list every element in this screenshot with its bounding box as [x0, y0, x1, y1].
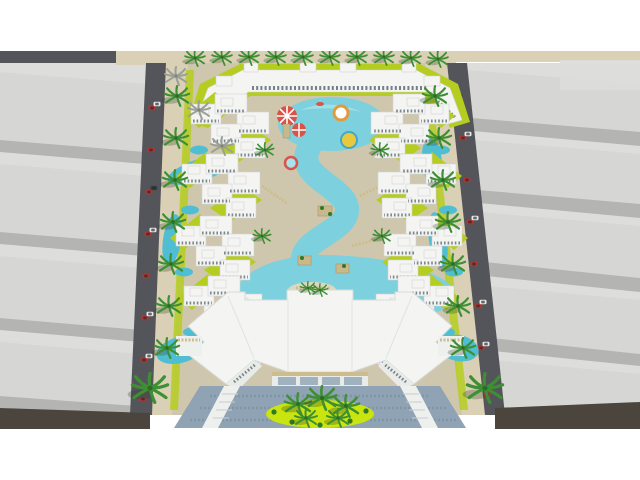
kids-ring-pool [285, 157, 297, 169]
car [460, 136, 467, 140]
car [467, 220, 474, 224]
car [148, 148, 155, 152]
yellow-disc-float [341, 132, 357, 148]
render-canvas [0, 0, 640, 480]
clubhouse-roof [188, 290, 452, 384]
car [149, 106, 156, 110]
round-walk-loop [337, 151, 367, 181]
car [151, 186, 158, 190]
car [475, 304, 482, 308]
top-left-road [0, 51, 116, 63]
left-city-blocks [0, 51, 150, 415]
pergola-cabana [298, 256, 311, 265]
massing-slab [0, 256, 143, 330]
car [480, 300, 487, 304]
car [465, 132, 472, 136]
car [146, 190, 153, 194]
car [483, 342, 490, 346]
car [464, 178, 471, 182]
car [150, 228, 157, 232]
car [142, 316, 149, 320]
car [143, 274, 150, 278]
massing-slab [0, 164, 145, 244]
clubhouse [174, 290, 466, 428]
bottom-white-margin [0, 429, 640, 480]
car [472, 216, 479, 220]
top-white-margin [0, 0, 640, 51]
aerial-render [0, 0, 640, 480]
car [471, 262, 478, 266]
red-dinghy [316, 102, 324, 106]
massing-slab [0, 72, 146, 152]
car [154, 102, 161, 106]
orange-ring-float [334, 106, 348, 120]
car [146, 354, 153, 358]
car [141, 358, 148, 362]
car [147, 312, 154, 316]
car [145, 232, 152, 236]
